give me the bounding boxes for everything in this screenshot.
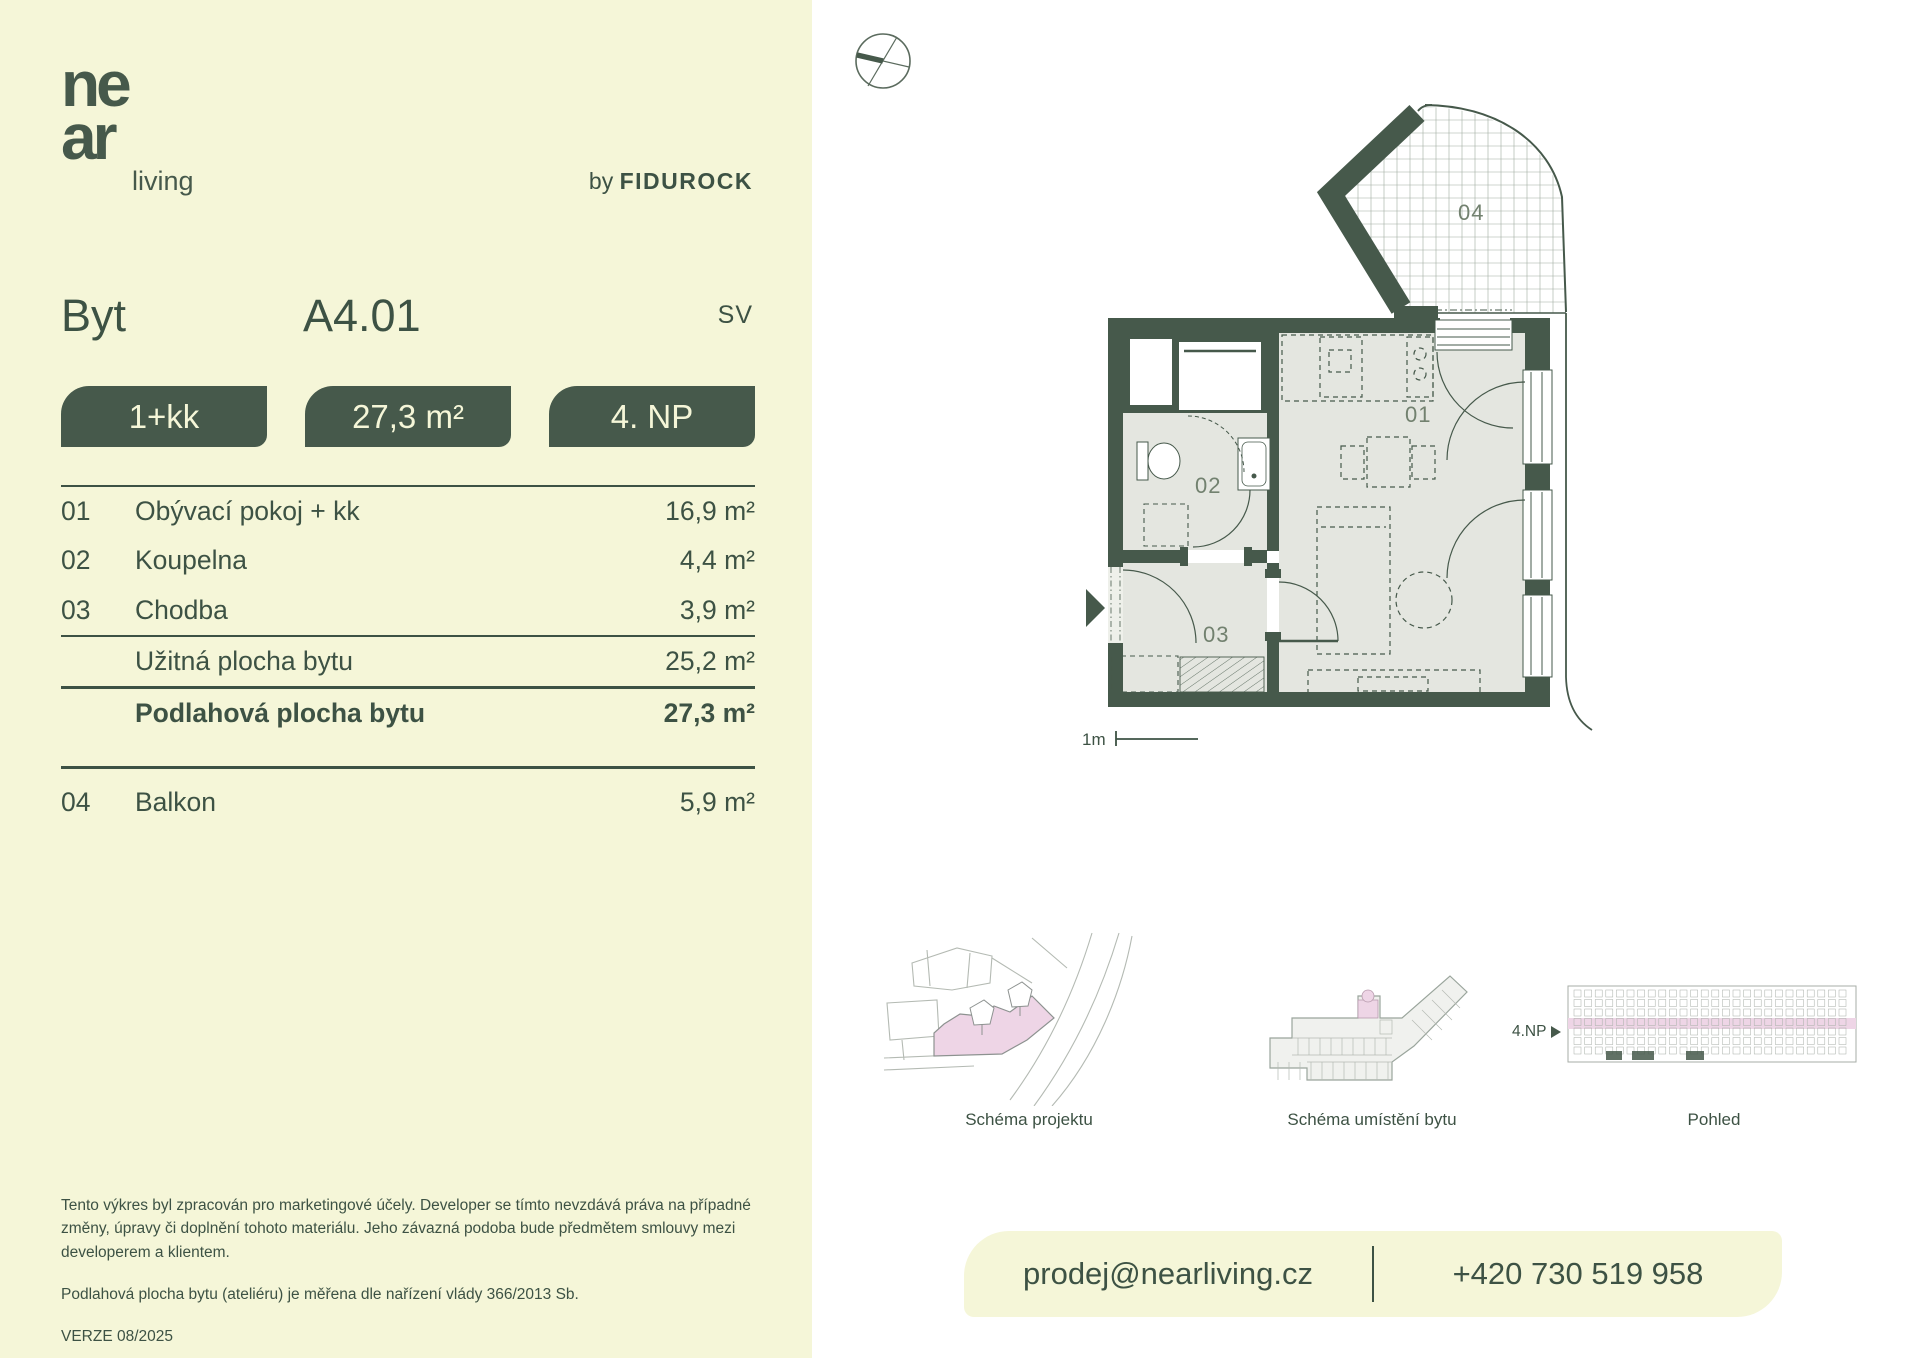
total-name: Podlahová plocha bytu xyxy=(135,698,664,729)
room-number: 02 xyxy=(61,545,135,576)
balcony-tile-grid xyxy=(1326,94,1566,313)
room-label-02: 02 xyxy=(1195,473,1221,498)
caption-elevation: Pohled xyxy=(1566,1110,1862,1130)
table-row: 02 Koupelna 4,4 m² xyxy=(61,536,755,585)
room-area: 5,9 m² xyxy=(680,787,755,818)
shower xyxy=(1238,438,1270,490)
room-number: 03 xyxy=(61,595,135,626)
elevation-schematic xyxy=(1566,980,1862,1080)
total-area: 27,3 m² xyxy=(664,698,755,729)
room-name: Chodba xyxy=(135,595,680,626)
caption-site-plan: Schéma projektu xyxy=(882,1110,1176,1130)
badge-layout: 1+kk xyxy=(61,386,267,447)
unit-location-schematic xyxy=(1262,950,1507,1105)
near-living-logo: ne ar xyxy=(61,58,128,164)
window-symbols xyxy=(1523,370,1552,677)
room-name: Koupelna xyxy=(135,545,680,576)
entrance-arrow-icon xyxy=(1086,589,1105,627)
north-compass-icon xyxy=(852,25,914,97)
room-area: 3,9 m² xyxy=(680,595,755,626)
room-number: 01 xyxy=(61,496,135,527)
wardrobe-hatched xyxy=(1180,657,1264,692)
room-area: 16,9 m² xyxy=(665,496,755,527)
floor-pointer-icon xyxy=(1551,1026,1561,1038)
byline-brand: FIDUROCK xyxy=(620,168,753,194)
contact-bar: prodej@nearliving.cz +420 730 519 958 xyxy=(964,1231,1782,1317)
room-label-04: 04 xyxy=(1458,200,1484,225)
byline-prefix: by xyxy=(589,168,613,194)
elevation-floor-label: 4.NP xyxy=(1512,1023,1561,1041)
total-area: 25,2 m² xyxy=(665,646,755,677)
legal-footer: Tento výkres byl zpracován pro marketing… xyxy=(61,1194,767,1367)
table-row-floor-area: Podlahová plocha bytu 27,3 m² xyxy=(61,689,755,738)
floor-label-text: 4.NP xyxy=(1512,1023,1546,1041)
room-name: Balkon xyxy=(135,787,680,818)
caption-unit-location: Schéma umístění bytu xyxy=(1227,1110,1517,1130)
room-label-03: 03 xyxy=(1203,622,1229,647)
contact-phone[interactable]: +420 730 519 958 xyxy=(1374,1256,1782,1292)
scale-label: 1m xyxy=(1082,730,1106,749)
orientation-label: SV xyxy=(0,301,753,330)
badge-floor: 4. NP xyxy=(549,386,755,447)
balcony-outer-edge xyxy=(1425,105,1566,312)
byline: by FIDUROCK xyxy=(0,168,753,195)
adjacent-building-edge xyxy=(1566,313,1592,730)
badge-area: 27,3 m² xyxy=(305,386,511,447)
contact-email[interactable]: prodej@nearliving.cz xyxy=(964,1256,1372,1292)
unit-highlight xyxy=(1358,1000,1378,1018)
room-number: 04 xyxy=(61,787,135,818)
disclaimer-text: Tento výkres byl zpracován pro marketing… xyxy=(61,1194,767,1264)
measurement-note: Podlahová plocha bytu (ateliéru) je měře… xyxy=(61,1283,767,1306)
unit-badges: 1+kk 27,3 m² 4. NP xyxy=(61,386,755,447)
info-panel: ne ar living by FIDUROCK Byt A4.01 SV 1+… xyxy=(0,0,812,1358)
shaft-box xyxy=(1130,339,1172,405)
room-area: 4,4 m² xyxy=(680,545,755,576)
room-area-table: 01 Obývací pokoj + kk 16,9 m² 02 Koupeln… xyxy=(61,485,755,829)
room-name: Obývací pokoj + kk xyxy=(135,496,665,527)
table-row-balcony: 04 Balkon 5,9 m² xyxy=(61,769,755,829)
floor-plan: 01 02 03 04 1m xyxy=(1080,80,1640,760)
toilet xyxy=(1137,442,1180,480)
version-label: VERZE 08/2025 xyxy=(61,1325,767,1348)
table-row: 01 Obývací pokoj + kk 16,9 m² xyxy=(61,487,755,536)
living-room-floor xyxy=(1279,333,1525,692)
table-row: 03 Chodba 3,9 m² xyxy=(61,586,755,635)
project-footprint-highlight xyxy=(934,996,1054,1056)
table-row-usable-area: Užitná plocha bytu 25,2 m² xyxy=(61,637,755,686)
site-plan-schematic xyxy=(882,928,1176,1106)
balcony-wall xyxy=(1331,113,1417,308)
room-label-01: 01 xyxy=(1405,402,1431,427)
total-name: Užitná plocha bytu xyxy=(135,646,665,677)
